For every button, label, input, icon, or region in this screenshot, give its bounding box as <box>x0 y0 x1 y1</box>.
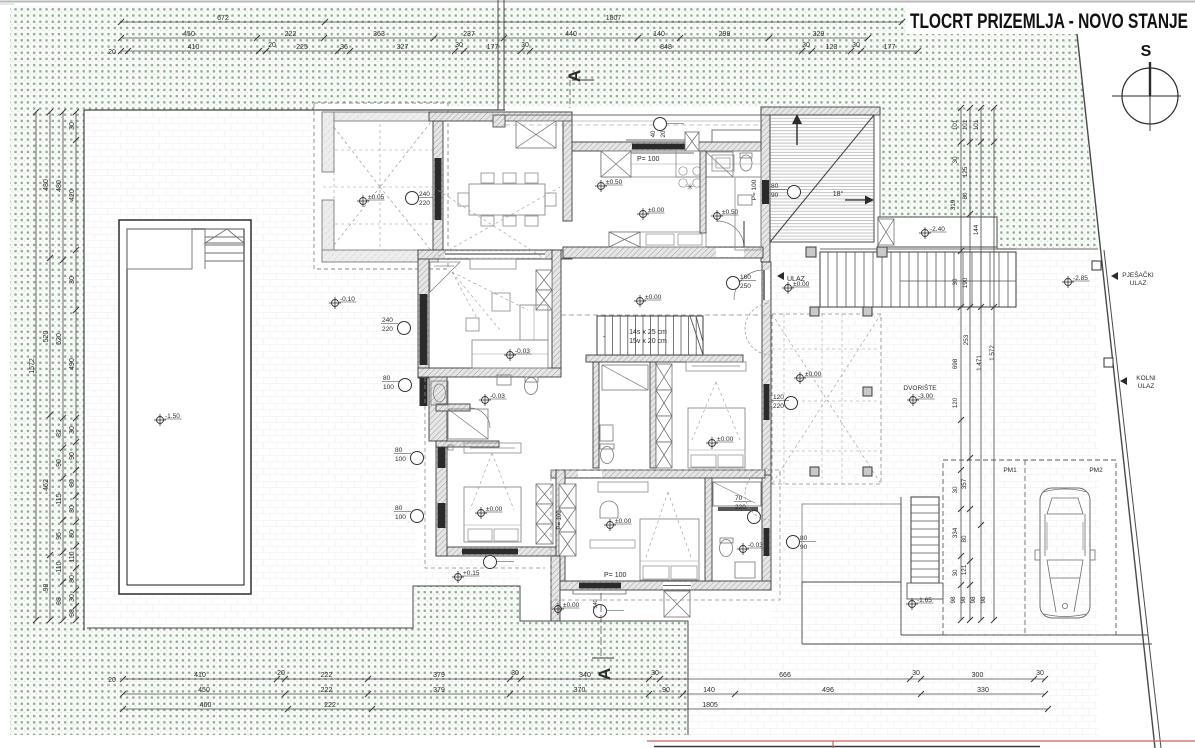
svg-text:80: 80 <box>961 535 968 543</box>
svg-text:329: 329 <box>813 31 825 38</box>
svg-text:330: 330 <box>977 687 989 694</box>
svg-text:98: 98 <box>960 596 967 604</box>
svg-text:370: 370 <box>574 687 586 694</box>
svg-text:DVORIŠTE: DVORIŠTE <box>903 383 937 392</box>
svg-text:101: 101 <box>952 119 959 130</box>
svg-text:P= 100: P= 100 <box>637 156 659 163</box>
svg-text:98: 98 <box>43 584 50 592</box>
svg-text:20: 20 <box>108 677 116 684</box>
svg-text:30: 30 <box>69 122 76 130</box>
svg-text:80: 80 <box>69 479 76 487</box>
svg-text:A: A <box>595 668 614 680</box>
svg-text:KOLNI: KOLNI <box>1136 375 1156 382</box>
svg-text:30: 30 <box>69 594 76 602</box>
svg-text:121: 121 <box>961 564 968 575</box>
svg-text:363: 363 <box>373 31 385 38</box>
svg-text:698: 698 <box>952 358 959 369</box>
svg-text:TLOCRT PRIZEMLJA - NOVO STANJE: TLOCRT PRIZEMLJA - NOVO STANJE <box>910 9 1188 33</box>
svg-text:30: 30 <box>952 569 959 577</box>
svg-text:520: 520 <box>56 333 63 345</box>
svg-text:P= 100: P= 100 <box>604 572 626 579</box>
svg-text:20: 20 <box>277 670 285 677</box>
svg-text:379: 379 <box>433 672 445 679</box>
svg-text:490: 490 <box>69 358 76 370</box>
svg-text:340: 340 <box>593 599 599 608</box>
svg-text:190: 190 <box>962 277 969 288</box>
svg-text:319: 319 <box>950 199 957 210</box>
svg-text:90: 90 <box>56 459 63 467</box>
svg-text:496: 496 <box>822 687 834 694</box>
svg-text:18°: 18° <box>833 190 844 198</box>
svg-text:220: 220 <box>735 504 746 511</box>
svg-text:14s x 25 cm: 14s x 25 cm <box>629 329 667 336</box>
svg-text:1805: 1805 <box>702 702 718 709</box>
svg-text:82: 82 <box>56 429 63 437</box>
svg-text:1807: 1807 <box>606 15 622 22</box>
svg-text:240: 240 <box>382 317 393 324</box>
svg-text:30: 30 <box>69 276 76 284</box>
svg-text:115: 115 <box>56 493 63 504</box>
svg-text:480: 480 <box>56 180 63 192</box>
svg-text:222: 222 <box>321 687 333 694</box>
svg-text:140: 140 <box>653 31 665 38</box>
svg-text:S: S <box>1141 43 1152 60</box>
svg-text:36: 36 <box>340 44 348 51</box>
svg-text:666: 666 <box>779 672 791 679</box>
svg-text:334: 334 <box>952 527 959 538</box>
svg-text:110: 110 <box>69 551 76 562</box>
svg-text:30: 30 <box>511 670 519 677</box>
svg-text:80: 80 <box>962 192 969 200</box>
svg-text:PM1: PM1 <box>1003 467 1017 474</box>
svg-text:40: 40 <box>651 130 657 137</box>
svg-text:30: 30 <box>952 156 959 164</box>
svg-text:98: 98 <box>950 596 957 604</box>
svg-text:120: 120 <box>952 397 959 408</box>
svg-text:520: 520 <box>43 331 50 343</box>
svg-text:123: 123 <box>826 44 838 51</box>
svg-text:144: 144 <box>973 224 980 235</box>
svg-text:30: 30 <box>521 42 529 49</box>
svg-text:20: 20 <box>268 42 276 49</box>
svg-text:98: 98 <box>980 596 987 604</box>
svg-text:222: 222 <box>324 702 336 709</box>
svg-text:160: 160 <box>740 274 751 281</box>
svg-text:90: 90 <box>771 192 779 199</box>
svg-text:30: 30 <box>651 670 659 677</box>
svg-text:30: 30 <box>912 670 920 677</box>
svg-text:80: 80 <box>771 183 779 190</box>
svg-text:101: 101 <box>962 119 969 130</box>
svg-text:90: 90 <box>69 452 76 460</box>
svg-text:140: 140 <box>703 687 715 694</box>
svg-text:P= 100: P= 100 <box>557 510 563 530</box>
svg-text:672: 672 <box>217 15 229 22</box>
svg-text:30: 30 <box>952 278 959 286</box>
svg-text:80: 80 <box>383 375 391 382</box>
svg-text:253: 253 <box>963 334 970 345</box>
svg-text:98: 98 <box>56 597 63 605</box>
svg-text:222: 222 <box>321 672 333 679</box>
svg-text:462: 462 <box>43 479 50 491</box>
svg-text:440: 440 <box>565 31 577 38</box>
svg-text:177: 177 <box>884 44 896 51</box>
svg-text:379: 379 <box>433 687 445 694</box>
svg-text:20: 20 <box>108 49 116 56</box>
svg-text:30: 30 <box>69 505 76 513</box>
svg-text:98: 98 <box>970 596 977 604</box>
svg-text:30: 30 <box>952 486 959 494</box>
svg-text:30: 30 <box>802 42 810 49</box>
svg-text:1.572: 1.572 <box>989 345 996 361</box>
svg-text:420: 420 <box>69 189 76 201</box>
svg-text:1.471: 1.471 <box>976 355 983 371</box>
svg-text:100: 100 <box>383 384 394 391</box>
svg-text:PM2: PM2 <box>1089 467 1103 474</box>
svg-text:410: 410 <box>188 44 200 51</box>
svg-text:237: 237 <box>463 31 475 38</box>
svg-text:30: 30 <box>455 42 463 49</box>
svg-text:1572: 1572 <box>29 358 36 374</box>
svg-text:225: 225 <box>296 44 308 51</box>
svg-text:327: 327 <box>397 44 409 51</box>
svg-text:100: 100 <box>395 514 406 521</box>
svg-text:15v x 20 cm: 15v x 20 cm <box>629 338 667 345</box>
svg-text:410: 410 <box>194 672 206 679</box>
svg-text:450: 450 <box>198 687 210 694</box>
svg-text:120: 120 <box>773 394 784 401</box>
svg-text:125: 125 <box>962 166 969 177</box>
svg-text:450: 450 <box>183 31 195 38</box>
svg-text:848: 848 <box>660 44 672 51</box>
svg-text:480: 480 <box>43 179 50 191</box>
svg-text:✳: ✳ <box>686 182 694 192</box>
svg-text:80: 80 <box>69 575 76 583</box>
svg-text:300: 300 <box>972 672 984 679</box>
svg-text:80: 80 <box>395 447 403 454</box>
svg-text:100: 100 <box>395 456 406 463</box>
svg-text:298: 298 <box>719 31 731 38</box>
svg-text:357: 357 <box>961 478 968 489</box>
svg-text:101: 101 <box>973 119 980 130</box>
svg-text:ULAZ: ULAZ <box>1138 383 1155 390</box>
svg-text:110: 110 <box>56 561 63 572</box>
svg-text:95: 95 <box>56 532 63 540</box>
svg-text:340: 340 <box>579 672 591 679</box>
svg-text:240: 240 <box>419 191 430 198</box>
svg-text:90: 90 <box>662 687 670 694</box>
svg-text:30: 30 <box>1036 670 1044 677</box>
svg-text:ULAZ: ULAZ <box>1130 280 1147 287</box>
svg-text:220: 220 <box>419 200 430 207</box>
svg-text:PJEŠAČKI: PJEŠAČKI <box>1122 270 1154 279</box>
svg-text:80: 80 <box>69 530 76 538</box>
svg-text:177: 177 <box>487 44 499 51</box>
svg-text:80: 80 <box>395 505 403 512</box>
svg-text:30: 30 <box>69 426 76 434</box>
svg-text:98: 98 <box>69 609 76 617</box>
svg-text:80: 80 <box>800 535 808 542</box>
svg-text:220: 220 <box>773 403 784 410</box>
svg-text:90: 90 <box>800 544 808 551</box>
svg-text:222: 222 <box>285 31 297 38</box>
svg-text:460: 460 <box>200 702 212 709</box>
svg-text:220: 220 <box>382 326 393 333</box>
svg-text:250: 250 <box>740 283 751 290</box>
svg-text:30: 30 <box>852 42 860 49</box>
svg-text:70: 70 <box>735 495 743 502</box>
svg-text:20: 20 <box>661 130 667 137</box>
